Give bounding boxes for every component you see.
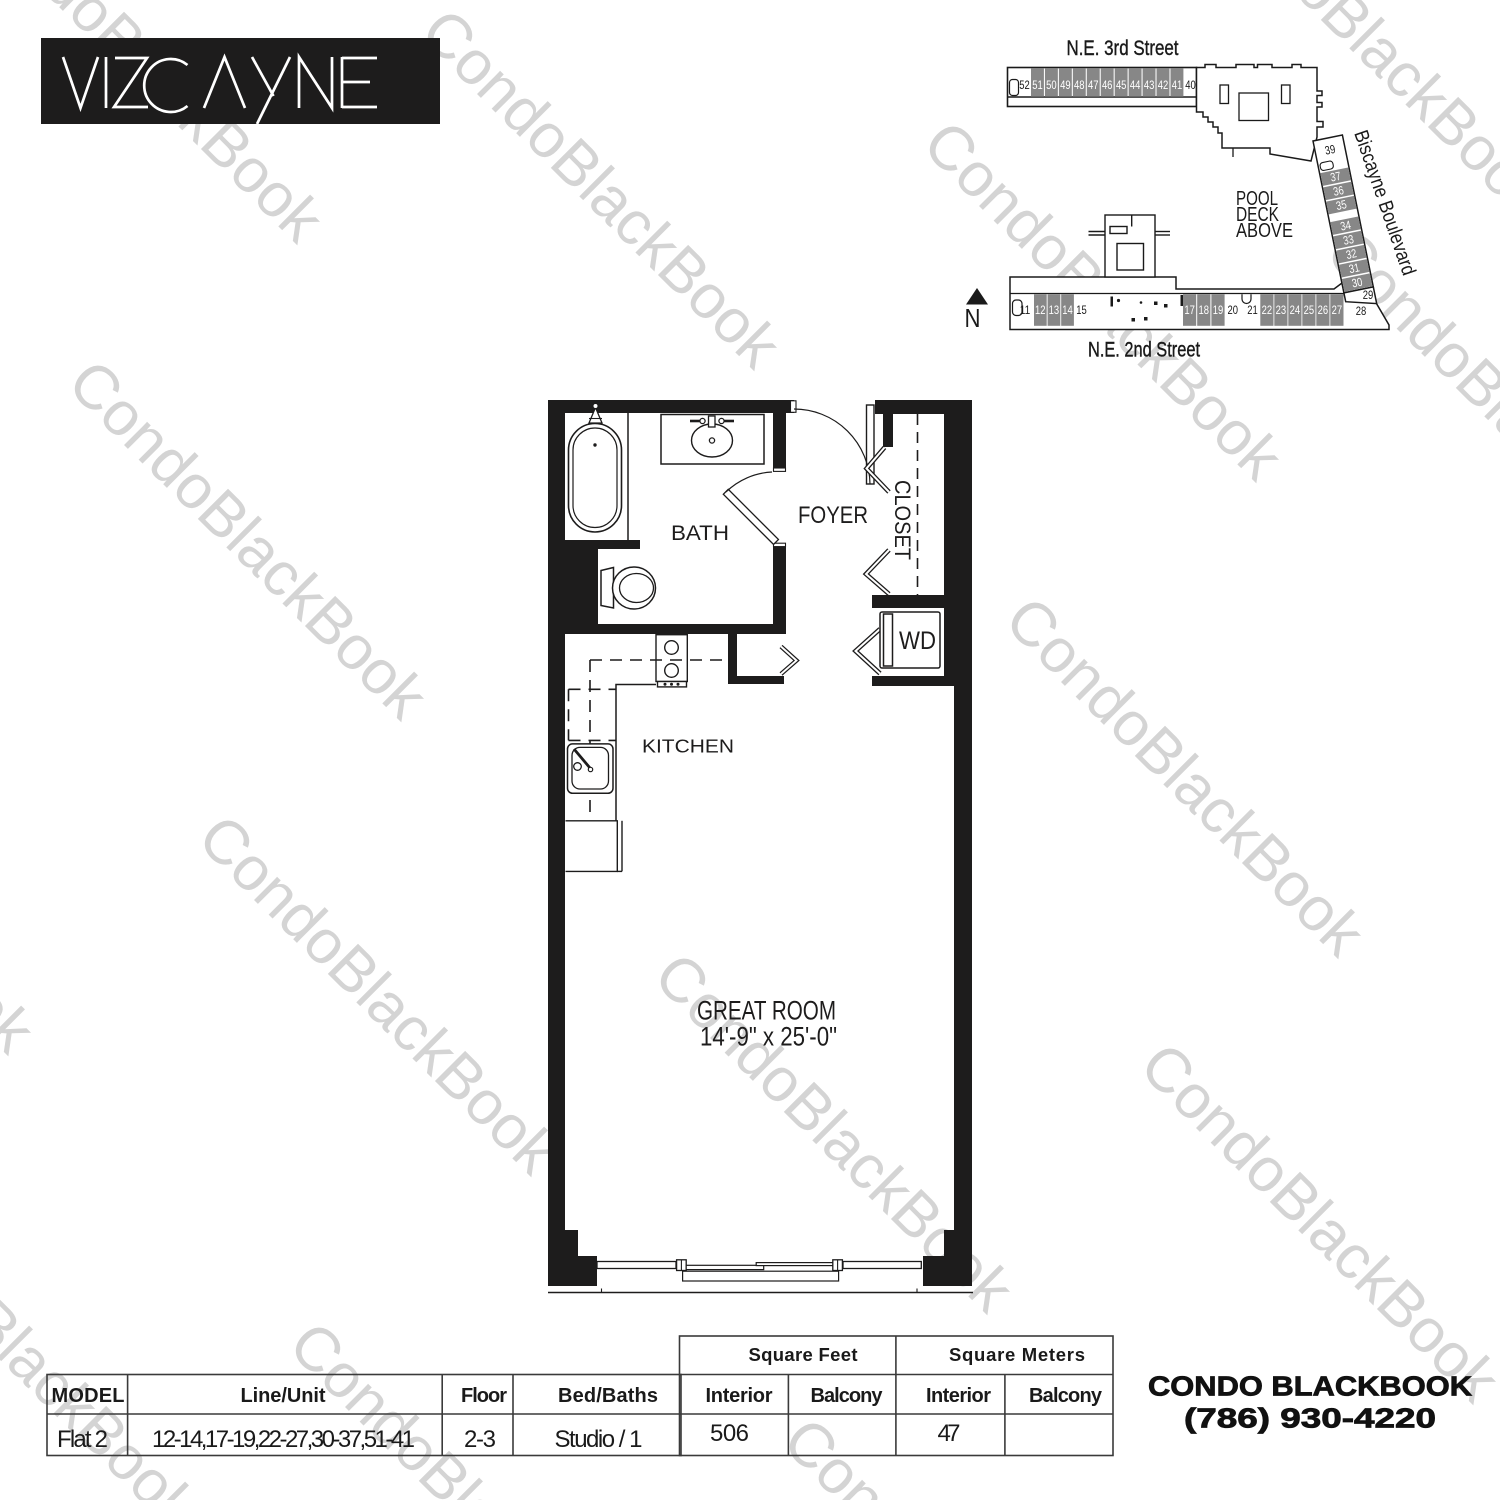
svg-text:45: 45 [1116,78,1127,92]
svg-text:Interior: Interior [926,1385,991,1407]
svg-text:21: 21 [1247,303,1258,317]
svg-text:Balcony: Balcony [1029,1385,1103,1407]
svg-text:52: 52 [1019,78,1030,92]
svg-text:ABOVE: ABOVE [1236,220,1293,242]
svg-text:47: 47 [938,1420,961,1447]
svg-text:Balcony: Balcony [811,1385,884,1407]
svg-text:46: 46 [1102,78,1113,92]
svg-text:43: 43 [1144,78,1155,92]
svg-text:17: 17 [1184,303,1195,317]
svg-text:27: 27 [1332,303,1343,317]
svg-text:Interior: Interior [706,1385,773,1407]
svg-text:WD: WD [899,627,936,655]
svg-text:BATH: BATH [671,521,729,545]
svg-text:44: 44 [1130,78,1141,92]
svg-text:Line/Unit: Line/Unit [241,1385,326,1407]
svg-text:Studio / 1: Studio / 1 [555,1426,643,1453]
svg-text:Square Meters: Square Meters [949,1344,1085,1365]
svg-text:N.E. 2nd Street: N.E. 2nd Street [1088,339,1200,362]
svg-text:25: 25 [1304,303,1315,317]
svg-text:50: 50 [1046,78,1057,92]
svg-text:11: 11 [1020,303,1031,317]
svg-text:506: 506 [710,1420,749,1447]
svg-text:15: 15 [1076,303,1087,317]
svg-text:Square Feet: Square Feet [749,1344,858,1365]
svg-text:40: 40 [1185,78,1196,92]
svg-text:24: 24 [1290,303,1301,317]
svg-text:N: N [965,303,981,333]
svg-text:28: 28 [1356,304,1367,318]
svg-text:48: 48 [1074,78,1085,92]
svg-text:Flat 2: Flat 2 [57,1426,108,1453]
svg-text:29: 29 [1363,288,1374,302]
svg-text:(786) 930-4220: (786) 930-4220 [1184,1403,1436,1434]
svg-text:22: 22 [1262,303,1273,317]
svg-text:13: 13 [1049,303,1060,317]
svg-text:12: 12 [1035,303,1046,317]
svg-text:N.E. 3rd Street: N.E. 3rd Street [1067,37,1179,60]
svg-text:FOYER: FOYER [798,502,868,529]
svg-text:Bed/Baths: Bed/Baths [558,1385,658,1407]
svg-text:49: 49 [1060,78,1071,92]
svg-text:14'-9" x 25'-0": 14'-9" x 25'-0" [700,1022,837,1052]
svg-text:2-3: 2-3 [464,1426,496,1453]
svg-text:14: 14 [1062,303,1073,317]
svg-text:CONDO BLACKBOOK: CONDO BLACKBOOK [1148,1371,1472,1402]
svg-text:41: 41 [1172,78,1183,92]
svg-text:19: 19 [1213,303,1224,317]
svg-text:23: 23 [1276,303,1287,317]
svg-text:47: 47 [1088,78,1099,92]
svg-text:42: 42 [1158,78,1169,92]
svg-text:20: 20 [1228,303,1239,317]
svg-text:26: 26 [1318,303,1329,317]
svg-text:CLOSET: CLOSET [890,480,915,560]
svg-text:51: 51 [1032,78,1043,92]
svg-text:MODEL: MODEL [52,1385,125,1407]
svg-text:KITCHEN: KITCHEN [642,737,734,757]
svg-text:18: 18 [1199,303,1210,317]
svg-text:12-14,17-19,22-27,30-37,51-41: 12-14,17-19,22-27,30-37,51-41 [152,1426,415,1453]
svg-text:Floor: Floor [461,1385,507,1407]
